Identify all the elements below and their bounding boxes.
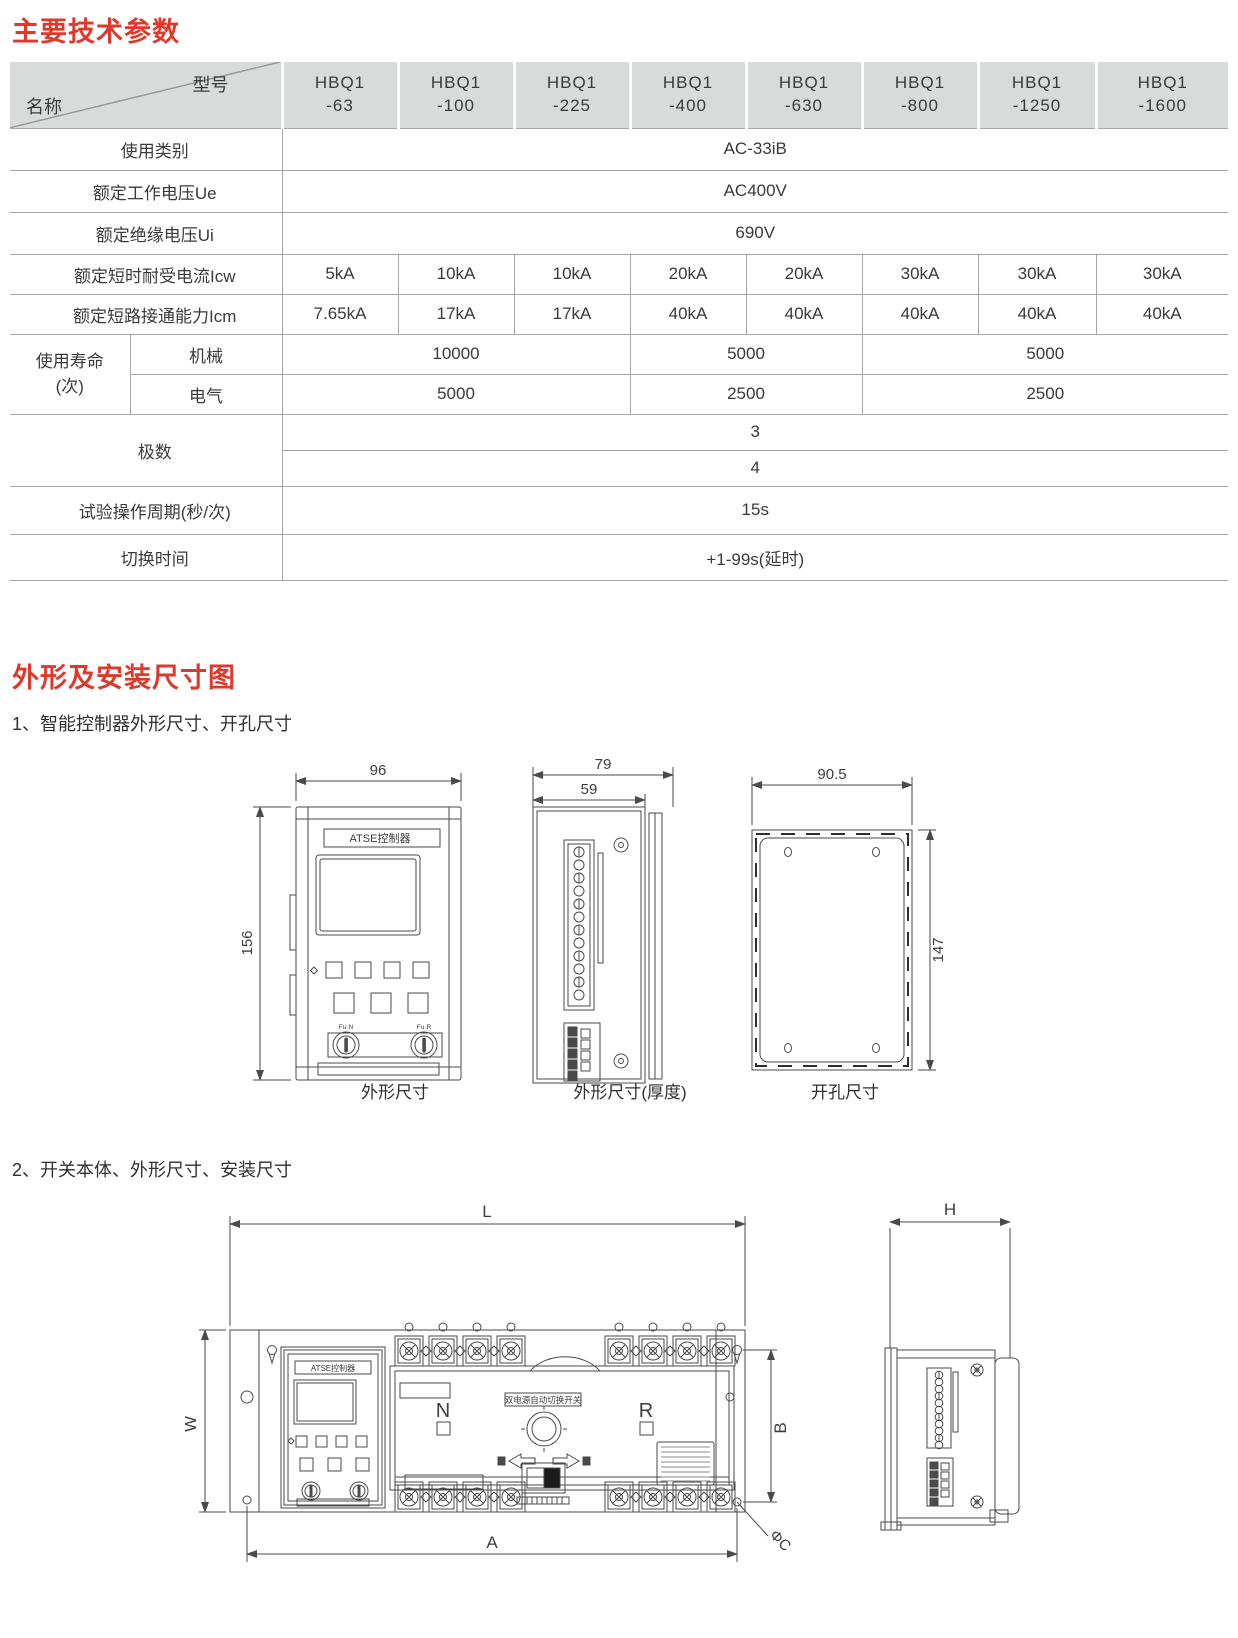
model-header: HBQ1-1600	[1096, 62, 1228, 128]
controller-drawings: 96 156 ATSE控制器 Fu·N Fu·R	[0, 745, 1238, 1155]
dim-label-B: B	[771, 1422, 790, 1433]
switch-side-view-drawing: H	[845, 1200, 1065, 1600]
key-label-left: Fu·N	[339, 1024, 354, 1031]
row-life-mechanical: 使用寿命 (次) 机械 10000 5000 5000	[10, 334, 1228, 374]
row-value: AC-33iB	[282, 128, 1228, 170]
controller-side-view-drawing: 79 59	[518, 745, 688, 1095]
panel-cutout-drawing: 90.5 147	[700, 745, 950, 1095]
poles-label: 极数	[10, 414, 282, 486]
dim-label-90-5: 90.5	[817, 766, 846, 783]
life-label: 使用寿命 (次)	[10, 334, 130, 414]
caption-side-view: 外形尺寸(厚度)	[530, 1078, 730, 1103]
switch-front-view-drawing: L W B A ΦC N R 双电源自动切换开关 ATSE控制器	[185, 1200, 805, 1600]
corner-name-label: 名称	[26, 93, 62, 119]
dim-label-96: 96	[370, 762, 387, 779]
table-header-row: 型号 名称 HBQ1-63 HBQ1-100 HBQ1-225 HBQ1-400…	[10, 62, 1228, 128]
model-header: HBQ1-800	[862, 62, 978, 128]
controller-panel-label: ATSE控制器	[311, 1363, 355, 1373]
life-mech-label: 机械	[130, 334, 282, 374]
corner-cell: 型号 名称	[10, 62, 282, 128]
switch-body-drawings: L W B A ΦC N R 双电源自动切换开关 ATSE控制器	[0, 1200, 1238, 1638]
row-icw: 额定短时耐受电流Icw 5kA 10kA 10kA 20kA 20kA 30kA…	[10, 254, 1228, 294]
controller-front-view-drawing: 96 156 ATSE控制器 Fu·N Fu·R	[228, 745, 478, 1095]
dim-label-156: 156	[239, 930, 256, 955]
row-value: 690V	[282, 212, 1228, 254]
row-usage-category: 使用类别 AC-33iB	[10, 128, 1228, 170]
model-header: HBQ1-225	[514, 62, 630, 128]
spec-table: 型号 名称 HBQ1-63 HBQ1-100 HBQ1-225 HBQ1-400…	[10, 62, 1228, 581]
row-poles-3: 极数 3	[10, 414, 1228, 450]
switch-plate-label: 双电源自动切换开关	[505, 1395, 582, 1405]
row-label: 切换时间	[10, 534, 282, 580]
caption-front-view: 外形尺寸	[295, 1078, 495, 1103]
row-label: 额定短时耐受电流Icw	[10, 254, 282, 294]
position-label-r: R	[639, 1400, 653, 1422]
row-rated-voltage: 额定工作电压Ue AC400V	[10, 170, 1228, 212]
caption-cutout: 开孔尺寸	[745, 1078, 945, 1103]
controller-panel-label: ATSE控制器	[350, 831, 411, 845]
row-label: 额定短路接通能力Icm	[10, 294, 282, 334]
key-label-right: Fu·R	[417, 1024, 432, 1031]
dim-label-147: 147	[930, 937, 947, 962]
position-label-n: N	[436, 1400, 450, 1422]
row-insulation-voltage: 额定绝缘电压Ui 690V	[10, 212, 1228, 254]
dim-label-A: A	[486, 1533, 498, 1552]
model-header: HBQ1-1250	[978, 62, 1096, 128]
dim-label-59: 59	[581, 781, 598, 798]
model-header: HBQ1-630	[746, 62, 862, 128]
row-label: 使用类别	[10, 128, 282, 170]
subsection2-title: 2、开关本体、外形尺寸、安装尺寸	[12, 1156, 292, 1182]
section1-title: 主要技术参数	[12, 10, 180, 49]
model-header: HBQ1-400	[630, 62, 746, 128]
subsection1-title: 1、智能控制器外形尺寸、开孔尺寸	[12, 710, 292, 736]
dim-label-L: L	[482, 1202, 491, 1221]
model-header: HBQ1-63	[282, 62, 398, 128]
dim-label-79: 79	[595, 756, 612, 773]
row-label: 额定工作电压Ue	[10, 170, 282, 212]
model-header: HBQ1-100	[398, 62, 514, 128]
row-value: AC400V	[282, 170, 1228, 212]
dim-label-C: ΦC	[766, 1527, 794, 1555]
dim-label-H: H	[944, 1200, 956, 1219]
section2-title: 外形及安装尺寸图	[12, 656, 236, 695]
life-elec-label: 电气	[130, 374, 282, 414]
row-switch-time: 切换时间 +1-99s(延时)	[10, 534, 1228, 580]
dim-label-W: W	[185, 1416, 200, 1432]
row-label: 额定绝缘电压Ui	[10, 212, 282, 254]
corner-model-label: 型号	[193, 71, 229, 97]
row-life-electrical: 电气 5000 2500 2500	[10, 374, 1228, 414]
row-test-cycle: 试验操作周期(秒/次) 15s	[10, 486, 1228, 534]
row-label: 试验操作周期(秒/次)	[10, 486, 282, 534]
row-icm: 额定短路接通能力Icm 7.65kA 17kA 17kA 40kA 40kA 4…	[10, 294, 1228, 334]
